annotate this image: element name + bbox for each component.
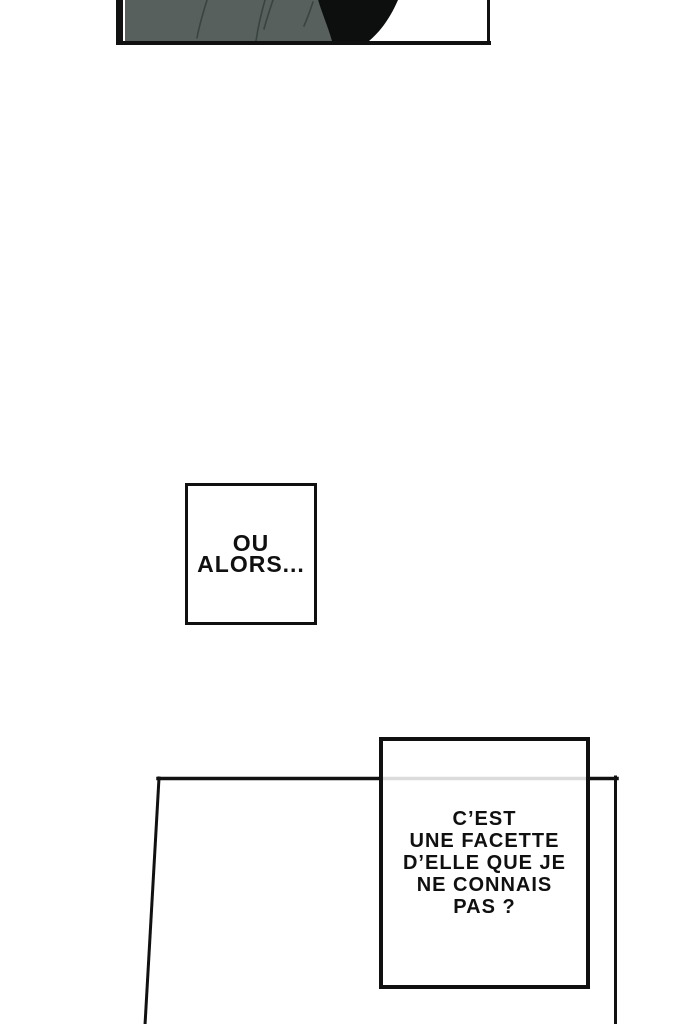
bottom-panel-border-left [145,778,159,1024]
caption-box-ou-alors: OU ALORS... [185,483,317,625]
top-panel-border-bottom [116,41,491,45]
top-panel-border-left [116,0,123,45]
comic-page: OU ALORS... C’EST UNE FACETTE D’ELLE QUE… [0,0,690,1024]
top-panel-border-right [487,0,490,45]
caption-box-cest-une-facette: C’EST UNE FACETTE D’ELLE QUE JE NE CONNA… [379,737,590,989]
caption-text: C’EST UNE FACETTE D’ELLE QUE JE NE CONNA… [403,808,566,918]
fabric-shape [125,0,333,41]
caption-text: OU ALORS... [197,533,305,575]
top-panel [116,0,491,45]
